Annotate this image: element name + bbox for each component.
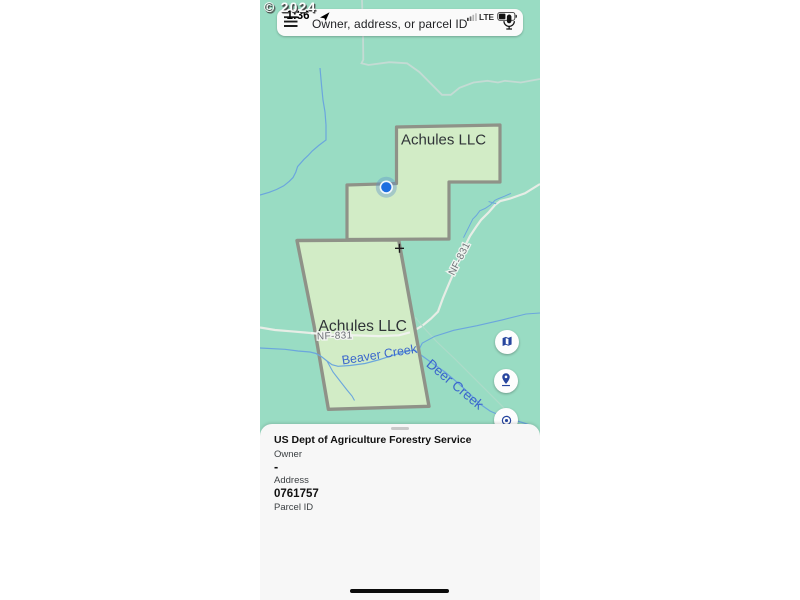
svg-text:Achules LLC: Achules LLC bbox=[401, 132, 486, 149]
svg-text:NF-831: NF-831 bbox=[317, 330, 353, 342]
